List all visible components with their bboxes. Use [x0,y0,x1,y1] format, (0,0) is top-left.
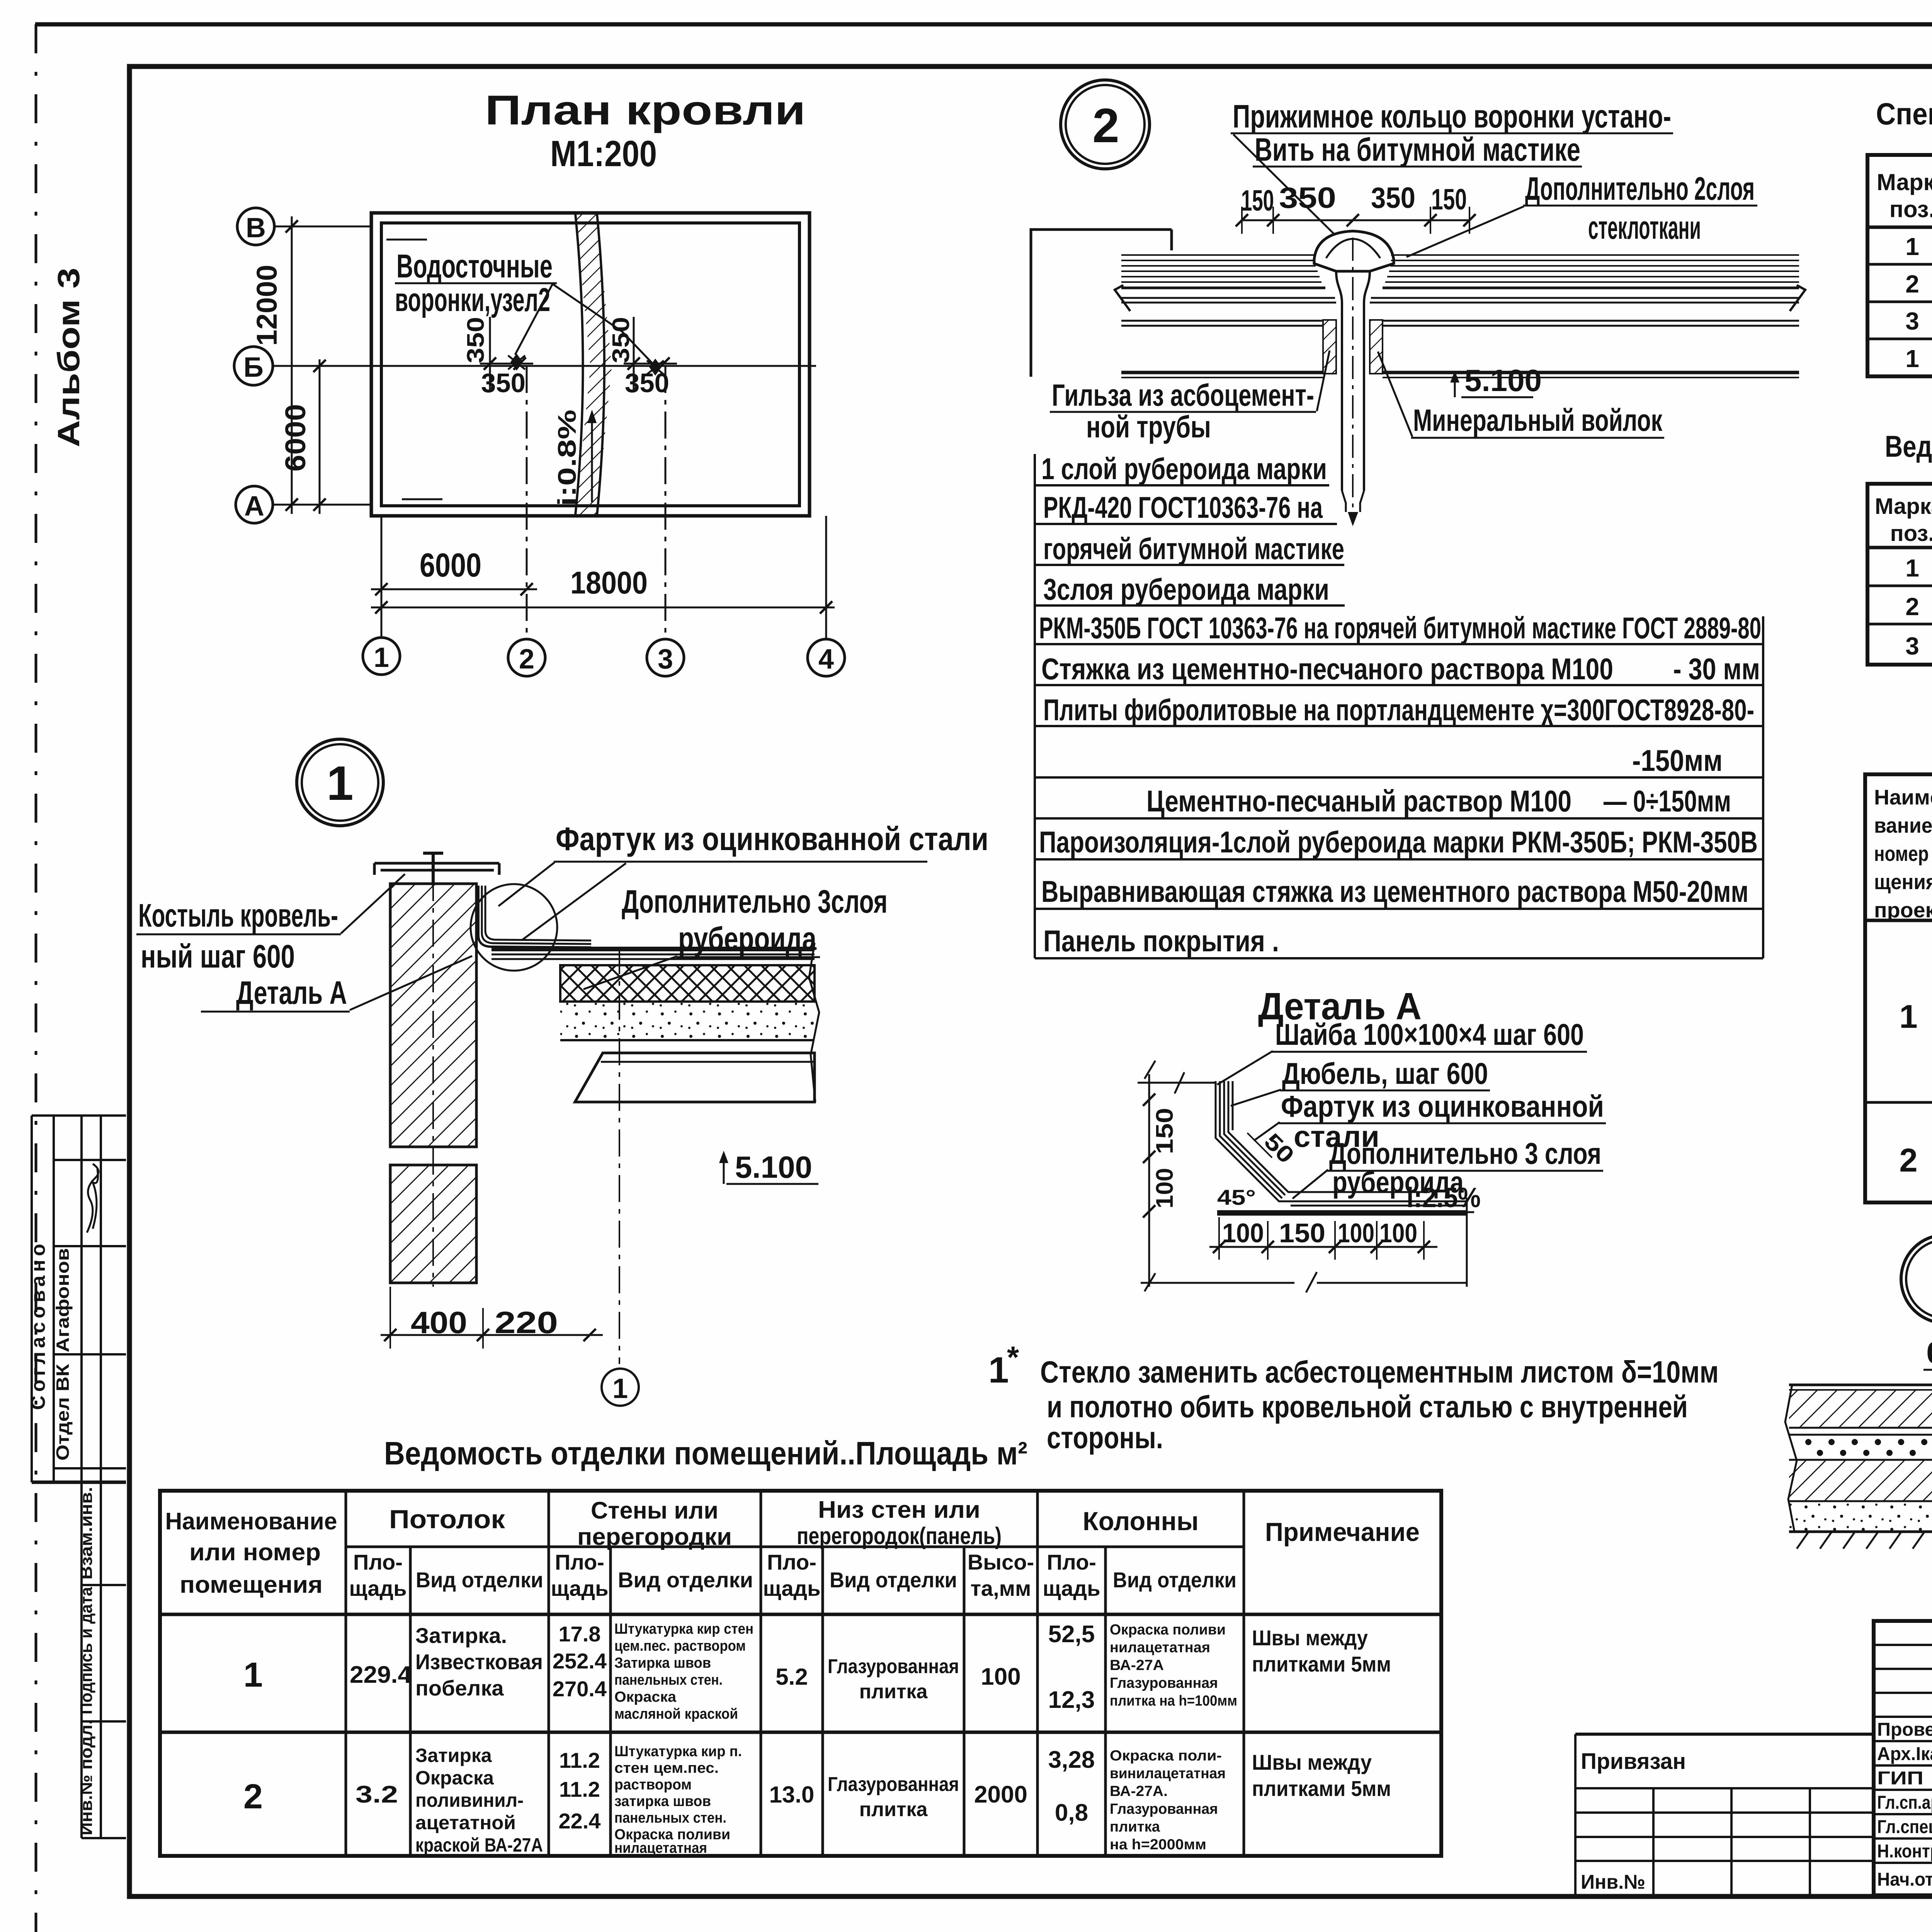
svg-text:3слоя рубероида марки: 3слоя рубероида марки [1043,572,1329,606]
svg-text:воронки,узел2: воронки,узел2 [395,282,550,318]
svg-text:12000: 12000 [251,265,283,346]
svg-text:2: 2 [1899,1142,1917,1179]
svg-text:1: 1 [988,1350,1009,1391]
svg-text:М1:200: М1:200 [550,133,657,174]
svg-text:плитками 5мм: плитками 5мм [1252,1776,1391,1801]
svg-text:Гл.спец.: Гл.спец. [1877,1817,1932,1837]
svg-text:350: 350 [1371,182,1415,214]
svg-text:5.2: 5.2 [776,1664,808,1690]
svg-text:Затирка.: Затирка. [415,1623,507,1648]
svg-text:Деталь А: Деталь А [236,975,347,1011]
svg-text:нилацетатная: нилацетатная [1110,1639,1210,1656]
svg-text:2: 2 [243,1777,263,1816]
svg-text:РКД-420 ГОСТ10363-76 на: РКД-420 ГОСТ10363-76 на [1043,490,1323,524]
svg-text:220: 220 [495,1305,558,1340]
svg-text:Стекло заменить асбестоцементн: Стекло заменить асбестоцементным листом … [1040,1355,1719,1389]
svg-text:2000: 2000 [974,1781,1027,1808]
svg-text:Плиты фибролитовые на портланд: Плиты фибролитовые на портландцементе χ=… [1043,693,1754,727]
svg-text:229.4: 229.4 [350,1662,412,1688]
svg-text:3,28: 3,28 [1048,1747,1095,1773]
svg-text:затирка швов: затирка швов [614,1793,711,1810]
svg-text:стороны.: стороны. [1047,1420,1163,1455]
svg-text:щадь: щадь [349,1576,406,1600]
svg-text:панельных стен.: панельных стен. [614,1810,726,1826]
svg-text:ной трубы: ной трубы [1086,410,1211,444]
svg-text:Окраска поли-: Окраска поли- [1110,1748,1222,1764]
svg-text:i:2.5%: i:2.5% [1406,1182,1481,1213]
svg-text:Инв.№ подл.: Инв.№ подл. [77,1719,96,1835]
svg-text:побелка: побелка [415,1676,504,1700]
svg-text:щадь: щадь [763,1576,820,1600]
svg-text:Н.контр.: Н.контр. [1877,1841,1932,1862]
svg-text:150: 150 [1279,1218,1325,1248]
svg-text:панельных стен.: панельных стен. [614,1672,723,1688]
svg-text:стеклоткани: стеклоткани [1588,209,1701,246]
svg-text:Пло-: Пло- [1047,1550,1096,1574]
svg-text:Колонны: Колонны [1083,1507,1199,1536]
svg-text:Вид отделки: Вид отделки [830,1568,957,1592]
svg-text:100: 100 [1379,1218,1417,1248]
svg-text:План кровли: План кровли [485,87,806,133]
svg-text:Выравнивающая стяжка из цемен: Выравнивающая стяжка из цементного раств… [1041,874,1748,908]
svg-text:-150мм: -150мм [1632,743,1723,777]
svg-text:Окраска поливи: Окраска поливи [1110,1622,1226,1638]
svg-text:ВА-27А: ВА-27А [1110,1657,1164,1673]
svg-text:Штукатурка кир стен: Штукатурка кир стен [614,1621,753,1637]
svg-text:1 слой рубероида марки: 1 слой рубероида марки [1041,452,1327,486]
svg-text:Штукатурка кир п.: Штукатурка кир п. [614,1743,742,1760]
svg-text:Пло-: Пло- [767,1550,816,1574]
svg-text:4: 4 [818,644,834,675]
svg-text:350: 350 [481,368,526,398]
svg-text:Пло-: Пло- [353,1550,403,1574]
svg-text:Глазурованная: Глазурованная [828,1655,959,1678]
svg-text:рубероида: рубероида [678,920,817,957]
svg-text:Высо-: Высо- [968,1550,1034,1574]
svg-text:Вид отделки: Вид отделки [1113,1568,1236,1592]
svg-text:Потолок: Потолок [389,1505,505,1534]
svg-text:цем.пес. раствором: цем.пес. раствором [614,1638,746,1654]
svg-text:Затирка: Затирка [415,1745,492,1766]
svg-text:Примечание: Примечание [1265,1517,1420,1547]
svg-text:Швы между: Швы между [1252,1750,1372,1774]
svg-text:5.100: 5.100 [1464,363,1542,398]
svg-text:краской ВА-27А: краской ВА-27А [415,1834,543,1856]
svg-text:Костыль кровель-: Костыль кровель- [138,897,338,934]
svg-text:щения по: щения по [1874,870,1932,894]
svg-text:Отдел ВК: Отдел ВК [53,1364,73,1461]
svg-text:Пло-: Пло- [555,1550,604,1574]
svg-text:или номер: или номер [189,1539,321,1566]
svg-text:1: 1 [327,757,354,810]
svg-text:плитками 5мм: плитками 5мм [1252,1652,1391,1676]
svg-text:плитка: плитка [859,1680,928,1703]
svg-text:400: 400 [411,1305,467,1340]
svg-text:100: 100 [1338,1218,1374,1248]
svg-text:Стены или: Стены или [591,1497,718,1524]
svg-text:Б: Б [243,352,264,383]
svg-text:150: 150 [1241,184,1274,217]
svg-text:Гильза из асбоцемент-: Гильза из асбоцемент- [1052,378,1314,412]
svg-text:Подпись и дата: Подпись и дата [77,1587,96,1714]
svg-text:Альбом 3: Альбом 3 [51,268,86,447]
svg-text:Стяжка из цементно-песчаного р: Стяжка из цементно-песчаного раствора М1… [1041,652,1613,686]
svg-text:1: 1 [1905,554,1919,582]
svg-text:масляной краской: масляной краской [614,1706,738,1722]
svg-text:3: 3 [1905,632,1919,660]
svg-text:номер поме: номер поме [1874,842,1932,866]
svg-text:Дополнительно 2слоя: Дополнительно 2слоя [1525,170,1755,207]
svg-text:Вить на битумной мастике: Вить на битумной мастике [1255,131,1580,168]
svg-text:45°: 45° [1217,1185,1256,1209]
svg-text:5.100: 5.100 [735,1150,812,1184]
svg-text:350: 350 [608,317,634,363]
svg-text:стен цем.пес.: стен цем.пес. [614,1760,719,1776]
svg-text:3: 3 [658,644,673,675]
svg-text:13.0: 13.0 [769,1782,815,1808]
svg-text:Марка: Марка [1877,169,1932,195]
svg-text:Окраска: Окраска [614,1689,677,1705]
svg-text:1: 1 [374,642,389,673]
svg-text:перегородок(панель): перегородок(панель) [797,1523,1002,1549]
svg-text:плитка на h=100мм: плитка на h=100мм [1110,1693,1237,1709]
svg-text:Цементно-песчаный раствор М100: Цементно-песчаный раствор М100 [1146,784,1571,818]
svg-text:Ведомость проемов ворот идвере: Ведомость проемов ворот идверей [1885,429,1932,463]
svg-text:Фартук из оцинкованной стали: Фартук из оцинкованной стали [556,821,988,857]
svg-text:щадь: щадь [1043,1576,1100,1600]
svg-text:щадь: щадь [551,1576,608,1600]
svg-text:11.2: 11.2 [559,1777,600,1801]
svg-text:Вид отделки: Вид отделки [618,1568,753,1592]
svg-text:0,8: 0,8 [1055,1799,1088,1826]
svg-text:Ведомость отделки помещений..П: Ведомость отделки помещений..Площадь м² [384,1435,1027,1471]
svg-text:Арх.Iкат: Арх.Iкат [1877,1744,1932,1764]
svg-text:и полотно обить кровельной ста: и полотно обить кровельной сталью с внут… [1047,1389,1688,1424]
svg-text:нилацетатная: нилацетатная [614,1840,707,1856]
svg-text:Глазурованная: Глазурованная [1110,1675,1218,1691]
svg-text:Дюбель, шаг 600: Дюбель, шаг 600 [1282,1056,1488,1090]
svg-text:17.8: 17.8 [559,1622,601,1646]
svg-text:Известковая: Известковая [415,1650,543,1674]
svg-text:100: 100 [1151,1168,1178,1209]
svg-text:плитка: плитка [859,1798,928,1821]
svg-text:поливинил-: поливинил- [415,1789,524,1811]
svg-text:Наименование: Наименование [165,1508,337,1535]
svg-text:на h=2000мм: на h=2000мм [1110,1837,1206,1853]
svg-text:52,5: 52,5 [1048,1621,1095,1648]
svg-text:поз.: поз. [1890,521,1932,546]
svg-text:Затирка швов: Затирка швов [614,1655,711,1671]
svg-text:Глазурованная: Глазурованная [1110,1801,1218,1817]
svg-text:винилацетатная: винилацетатная [1110,1765,1226,1782]
svg-text:та,мм: та,мм [971,1576,1031,1600]
svg-text:150: 150 [1431,183,1467,216]
svg-text:2: 2 [1092,99,1119,153]
svg-text:РКМ-350Б ГОСТ 10363-76 на горя: РКМ-350Б ГОСТ 10363-76 на горячей битумн… [1039,611,1761,645]
svg-text:Окраска: Окраска [415,1767,494,1789]
svg-text:1: 1 [612,1373,628,1404]
svg-text:3: 3 [1905,307,1919,335]
svg-text:поз.: поз. [1889,196,1932,222]
svg-text:6000: 6000 [420,547,481,584]
svg-text:плитка: плитка [1110,1819,1160,1835]
svg-text:Взам.инв.: Взам.инв. [77,1487,96,1580]
svg-text:Минеральный войлок: Минеральный войлок [1413,403,1663,437]
svg-text:2: 2 [1905,270,1919,298]
svg-text:ный шаг 600: ный шаг 600 [141,938,295,975]
svg-text:1: 1 [1905,345,1919,372]
svg-text:12,3: 12,3 [1048,1687,1095,1713]
svg-text:Швы между: Швы между [1252,1626,1368,1650]
svg-text:3.2: 3.2 [355,1781,398,1808]
svg-text:помещения: помещения [180,1571,323,1598]
svg-text:Глазурованная: Глазурованная [828,1773,959,1796]
svg-text:Марка,: Марка, [1875,494,1932,519]
svg-text:1: 1 [1899,998,1917,1035]
svg-text:Низ стен или: Низ стен или [818,1497,980,1523]
svg-text:Спецификация элементов заполне: Спецификация элементов заполнения проемо… [1876,97,1932,131]
svg-text:Дополнительно 3слоя: Дополнительно 3слоя [622,883,888,920]
svg-text:А: А [244,491,264,522]
svg-text:Пароизоляция-1слой рубероида м: Пароизоляция-1слой рубероида марки РКМ-3… [1039,825,1758,859]
svg-text:— 0÷150мм: — 0÷150мм [1604,784,1731,818]
svg-text:2: 2 [519,644,534,675]
svg-text:150: 150 [1151,1108,1178,1154]
svg-text:252.4: 252.4 [553,1649,607,1673]
svg-text:Водосточные: Водосточные [396,248,553,285]
svg-text:1: 1 [1905,233,1919,260]
svg-text:350: 350 [463,317,489,363]
svg-text:Прижимное кольцо воронки устан: Прижимное кольцо воронки устано- [1233,98,1671,134]
svg-text:- 30 мм: - 30 мм [1673,652,1760,686]
svg-text:ГИП: ГИП [1877,1768,1923,1789]
svg-text:ацетатной: ацетатной [415,1812,516,1833]
svg-text:350: 350 [1279,182,1336,214]
svg-text:горячей битумной мастике: горячей битумной мастике [1043,532,1344,566]
svg-text:Гл.сп.арх: Гл.сп.арх [1877,1793,1932,1813]
svg-text:100: 100 [1222,1218,1264,1248]
svg-text:раствором: раствором [614,1777,692,1793]
svg-text:*: * [1007,1340,1019,1374]
svg-text:Фартук из оцинкованной: Фартук из оцинкованной [1281,1089,1604,1123]
svg-text:6000: 6000 [279,404,311,472]
svg-text:Инв.№: Инв.№ [1581,1871,1645,1893]
svg-text:350: 350 [625,368,669,398]
svg-text:1: 1 [243,1656,263,1694]
svg-text:ВА-27А.: ВА-27А. [1110,1783,1168,1799]
svg-text:18000: 18000 [570,565,648,600]
svg-text:22.4: 22.4 [559,1809,601,1833]
svg-text:Шайба 100×100×4 шаг 600: Шайба 100×100×4 шаг 600 [1275,1017,1584,1051]
svg-text:270.4: 270.4 [553,1677,607,1701]
svg-text:В: В [246,213,266,243]
svg-text:100: 100 [981,1663,1020,1690]
svg-text:проекту: проекту [1874,898,1932,922]
svg-text:11.2: 11.2 [559,1748,600,1772]
svg-text:Согласовано: Согласовано [27,1244,49,1410]
svg-text:i:0.8%: i:0.8% [553,410,581,506]
svg-text:Наимено-: Наимено- [1874,785,1932,809]
svg-text:Вид отделки: Вид отделки [416,1568,543,1592]
svg-text:2: 2 [1905,593,1919,621]
svg-text:Провер: Провер [1877,1719,1932,1740]
svg-text:Нач.отд: Нач.отд [1877,1869,1932,1890]
svg-text:Панель покрытия .: Панель покрытия . [1043,924,1279,958]
svg-text:Привязан: Привязан [1581,1749,1686,1774]
svg-text:Агафонов: Агафонов [53,1248,73,1352]
svg-text:перегородки: перегородки [577,1524,732,1550]
svg-text:вание или: вание или [1874,813,1932,837]
svg-text:0.040: 0.040 [1926,1335,1932,1370]
